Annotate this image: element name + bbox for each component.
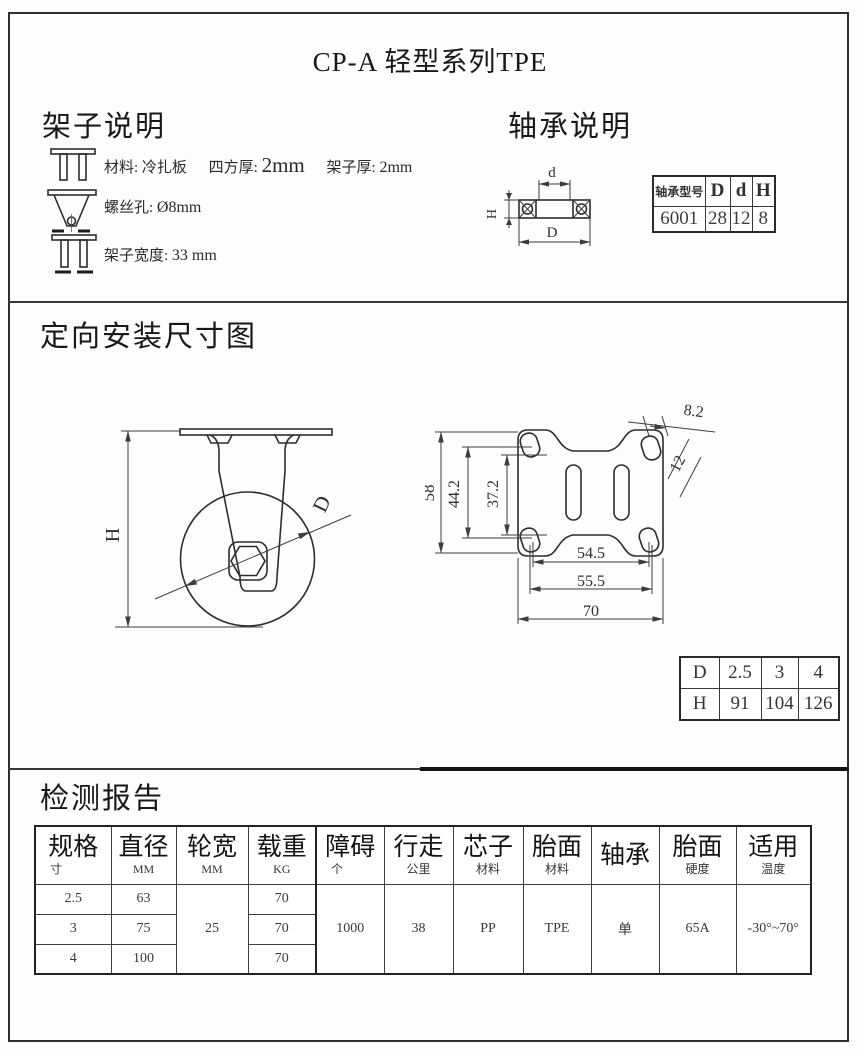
bearing-d-header: d [730, 176, 752, 206]
spec-value: 2.5 [35, 884, 111, 914]
hole-length-dim: 12 [667, 453, 690, 475]
bearing-H-header: H [752, 176, 775, 206]
load-value: 70 [248, 944, 316, 974]
col-tread-material: 胎面 材料 [523, 826, 591, 884]
material-spec-line: 材料: 冷扎板 四方厚: 2mm 架子厚: 2mm [104, 153, 412, 178]
bearing-H-value: 8 [752, 206, 775, 232]
spec-sheet-page: CP-A 轻型系列TPE 架子说明 材料: 冷扎板 四方厚: 2mm 架子厚: … [0, 0, 860, 1054]
col-travel: 行走 公里 [384, 826, 453, 884]
frame-width-value: 33 mm [172, 247, 217, 264]
page-title: CP-A 轻型系列TPE [0, 40, 860, 79]
bearing-dim-H-label: H [486, 209, 500, 219]
caster-side-view-drawing: H D [95, 405, 385, 665]
square-thickness-value: 2mm [262, 153, 305, 177]
plate-width-dim: 70 [583, 603, 599, 620]
bearing-dim-D-label: D [547, 225, 558, 241]
obstacles-value: 1000 [316, 884, 384, 974]
col-core-material: 芯子 材料 [453, 826, 523, 884]
frame-width-label: 架子宽度: [104, 248, 168, 264]
dh-d-value-3: 4 [798, 657, 839, 688]
diameter-value: 75 [111, 914, 176, 944]
screw-hole-label: 螺丝孔: [104, 200, 153, 216]
divider-thick-segment [420, 767, 849, 771]
fork-front-icon [50, 146, 96, 182]
col-wheel-width: 轮宽 MM [176, 826, 248, 884]
bearing-cross-section-drawing: d D H [486, 162, 616, 254]
travel-value: 38 [384, 884, 453, 974]
plate-height-dim: 58 [425, 485, 438, 502]
bearing-spec-table: 轴承型号 D d H 6001 28 12 8 [652, 175, 776, 233]
col-obstacles: 障碍 个 [316, 826, 384, 884]
frame-thickness-value: 2mm [379, 159, 412, 176]
hole-span-h-dim: 54.5 [577, 545, 605, 562]
side-view-H-label: H [102, 528, 124, 542]
col-bearing: 轴承 [591, 826, 659, 884]
section-divider-1 [8, 301, 849, 303]
report-row-2-5: 2.5 63 25 70 1000 38 PP TPE 单 65A -30°~7… [35, 884, 811, 914]
dh-h-value-1: 91 [719, 688, 761, 720]
test-report-table: 规格 寸 直径 MM 轮宽 MM 载重 KG 障碍 个 行走 公里 [34, 825, 812, 975]
dh-h-value-3: 126 [798, 688, 839, 720]
report-section-heading: 检测报告 [40, 775, 164, 817]
hole-width-dim: 8.2 [683, 402, 705, 422]
mounting-section-heading: 定向安装尺寸图 [40, 313, 257, 355]
bearing-dim-d-label: d [548, 165, 556, 181]
material-label: 材料: 冷扎板 [104, 160, 187, 176]
dh-h-value-2: 104 [761, 688, 798, 720]
mounting-plate-top-view-drawing: 58 44.2 37.2 54.5 55.5 70 8.2 12 [425, 390, 745, 655]
bearing-d-value: 12 [730, 206, 752, 232]
spec-value: 3 [35, 914, 111, 944]
bracket-side-icon [47, 188, 97, 234]
frame-thickness-label: 架子厚: [327, 160, 376, 176]
temp-range-value: -30°~70° [736, 884, 811, 974]
spec-value: 4 [35, 944, 111, 974]
hole-span-v-dim: 44.2 [446, 480, 463, 508]
report-header-row: 规格 寸 直径 MM 轮宽 MM 载重 KG 障碍 个 行走 公里 [35, 826, 811, 884]
bearing-D-value: 28 [705, 206, 730, 232]
slot-span-v-dim: 37.2 [485, 480, 502, 508]
col-temp-range: 适用 温度 [736, 826, 811, 884]
bearing-D-header: D [705, 176, 730, 206]
col-tread-hardness: 胎面 硬度 [659, 826, 736, 884]
dh-row-h-label: H [680, 688, 719, 720]
diameter-height-table: D 2.5 3 4 H 91 104 126 [679, 656, 840, 721]
load-value: 70 [248, 914, 316, 944]
core-material-value: PP [453, 884, 523, 974]
fork-width-icon [51, 233, 97, 279]
diameter-value: 100 [111, 944, 176, 974]
side-view-D-label: D [308, 492, 336, 516]
bearing-model-header: 轴承型号 [653, 176, 705, 206]
dh-row-d-label: D [680, 657, 719, 688]
tread-hardness-value: 65A [659, 884, 736, 974]
bearing-section-heading: 轴承说明 [508, 103, 632, 145]
screw-hole-spec-line: 螺丝孔: Ø8mm [104, 196, 201, 217]
dh-d-value-1: 2.5 [719, 657, 761, 688]
col-load: 载重 KG [248, 826, 316, 884]
diameter-value: 63 [111, 884, 176, 914]
load-value: 70 [248, 884, 316, 914]
tread-material-value: TPE [523, 884, 591, 974]
col-spec: 规格 寸 [35, 826, 111, 884]
square-thickness-label: 四方厚: [209, 160, 258, 176]
col-diameter: 直径 MM [111, 826, 176, 884]
bearing-type-value: 单 [591, 884, 659, 974]
hole-span-h2-dim: 55.5 [577, 573, 605, 590]
bearing-model-value: 6001 [653, 206, 705, 232]
frame-width-spec-line: 架子宽度: 33 mm [104, 244, 217, 265]
screw-hole-value: Ø8mm [157, 199, 201, 216]
wheel-width-value: 25 [176, 884, 248, 974]
dh-d-value-2: 3 [761, 657, 798, 688]
frame-section-heading: 架子说明 [42, 103, 166, 145]
